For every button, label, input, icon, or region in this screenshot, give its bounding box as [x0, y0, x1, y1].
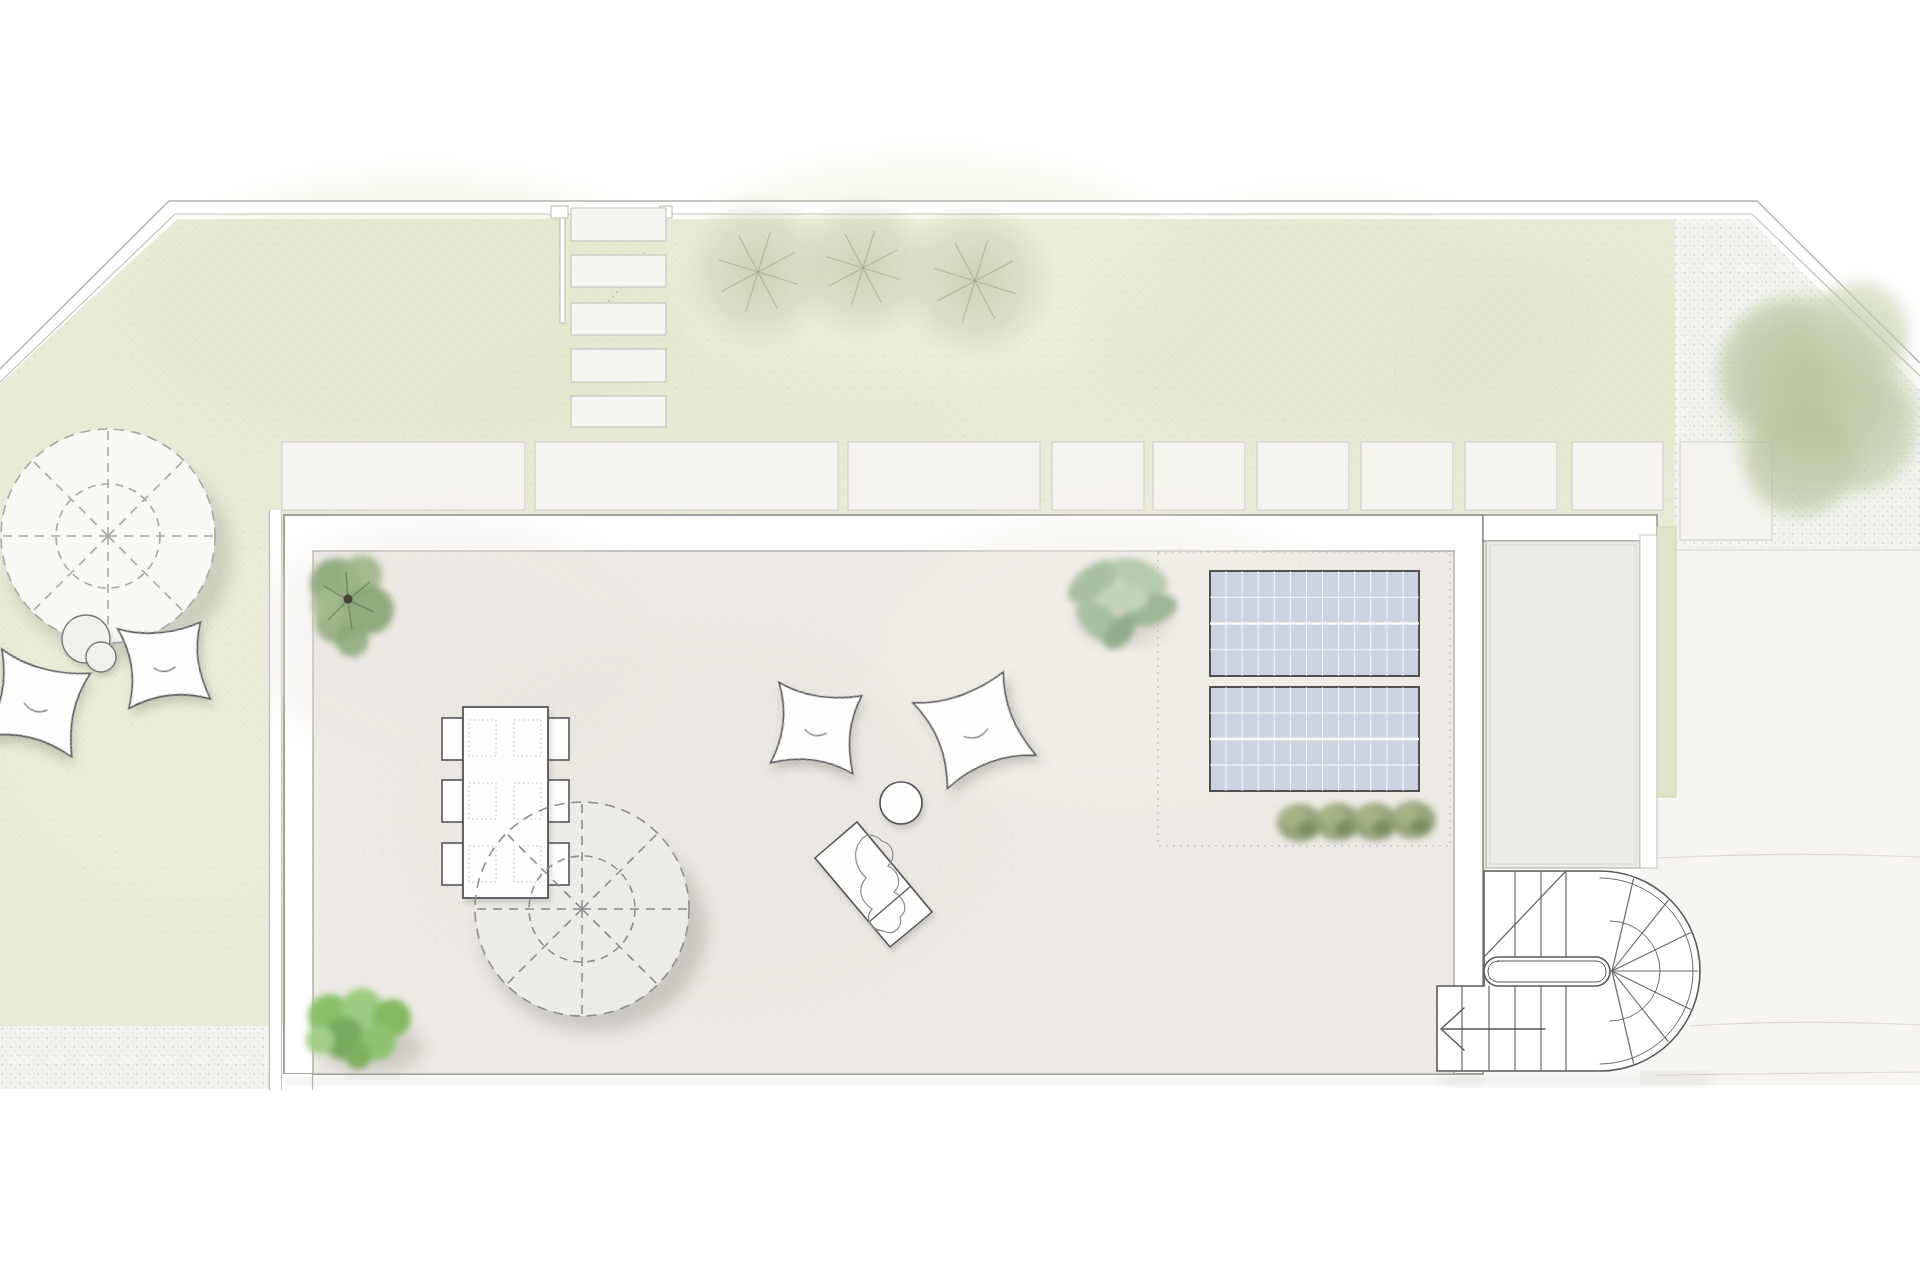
dining-chair	[548, 780, 569, 822]
wing-white-band	[1640, 535, 1657, 868]
stepping-stone	[571, 303, 666, 335]
grass-shade	[1410, 818, 1430, 834]
stepping-stone	[571, 396, 666, 427]
paver-slab	[1361, 442, 1453, 510]
solar-panel	[1210, 571, 1419, 676]
paver-slab	[1153, 442, 1245, 510]
grass-shade	[1297, 821, 1317, 837]
terrace-bottom-shadow	[284, 1076, 1483, 1085]
paver-slab	[1465, 442, 1557, 510]
dining-chair	[442, 843, 463, 885]
wall-stubs-below-terrace	[269, 1074, 1483, 1090]
paver-slab	[1257, 442, 1349, 510]
paver-slab	[848, 442, 1040, 510]
paver-slab	[535, 442, 838, 510]
garden-trees	[678, 192, 1057, 363]
paver-slab	[282, 442, 525, 510]
grass-shade	[1335, 820, 1355, 836]
garden-side-table	[86, 642, 116, 672]
dining-chair	[442, 780, 463, 822]
bean-bag-cushion	[118, 620, 211, 708]
garden-tree	[893, 199, 1057, 363]
dining-chair	[548, 843, 569, 885]
round-side-table	[880, 782, 922, 824]
tree-canopy-blobs	[1720, 282, 1917, 515]
dining-table	[463, 707, 548, 898]
site-plan-canvas	[0, 0, 1920, 1280]
grass-clump	[1390, 801, 1436, 839]
dining-set	[442, 707, 569, 898]
solar-panel	[1210, 687, 1419, 791]
right-wing	[1486, 527, 1676, 868]
paver-slab	[1572, 442, 1663, 510]
stepping-stone	[571, 255, 666, 287]
gate-post-line	[560, 212, 565, 323]
stepping-stone	[571, 208, 666, 241]
grass-shade	[1372, 820, 1392, 836]
dining-chair	[548, 718, 569, 760]
roof-terrace-plan	[0, 0, 1920, 1280]
stepping-stone	[571, 349, 666, 382]
lower-roof	[1486, 541, 1640, 868]
terrace-parapet-extension	[1483, 515, 1657, 541]
plant-stem-dot	[344, 595, 353, 604]
dining-chair	[442, 718, 463, 760]
paver-slab	[1052, 442, 1144, 510]
planting-strip	[1657, 527, 1676, 797]
gate-bracket-left	[551, 206, 568, 218]
gravel-bottom-left-texture	[0, 1026, 310, 1089]
